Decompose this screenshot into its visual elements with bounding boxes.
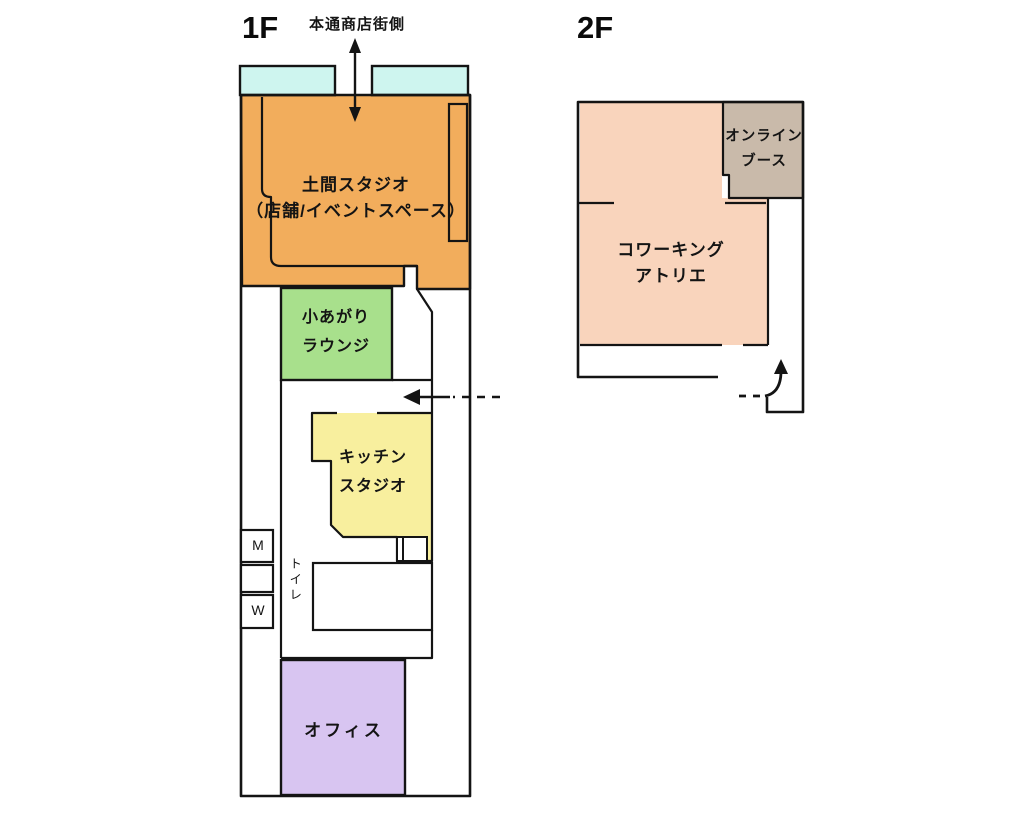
floor1-title: 1F — [242, 12, 278, 43]
toilet-label: トイレ — [288, 557, 301, 604]
toilet-room-middle — [241, 565, 273, 592]
room-label-kitchen-studio: キッチン スタジオ — [339, 444, 407, 502]
street-direction-arrow — [349, 38, 361, 122]
floorplan-canvas: 1F 本通商店街側 土間スタジオ （店舗/イベントスペース） 小あがり ラウンジ… — [0, 0, 1024, 817]
floorplan-drawing — [0, 0, 1024, 817]
wall-office-top — [281, 630, 432, 658]
toilet-men-label: M — [252, 535, 264, 557]
storefront-window-right — [372, 66, 468, 95]
room-corridor-under-kitchen — [313, 563, 432, 630]
floor2-title: 2F — [577, 12, 613, 43]
stairs-arrow-2f — [739, 359, 788, 396]
room-label-doma-studio: 土間スタジオ （店舗/イベントスペース） — [246, 173, 466, 226]
room-label-coworking-atelier: コワーキング アトリエ — [617, 238, 725, 291]
entry-arrow-1f — [403, 389, 500, 405]
room-label-office: オフィス — [304, 718, 384, 744]
room-label-koagari-lounge: 小あがり ラウンジ — [302, 304, 370, 362]
room-label-online-booth: オンライン ブース — [725, 124, 803, 173]
toilet-women-label: W — [251, 600, 264, 622]
kitchen-fixture-large — [403, 537, 427, 561]
street-side-label: 本通商店街側 — [309, 16, 405, 34]
storefront-window-left — [240, 66, 335, 95]
